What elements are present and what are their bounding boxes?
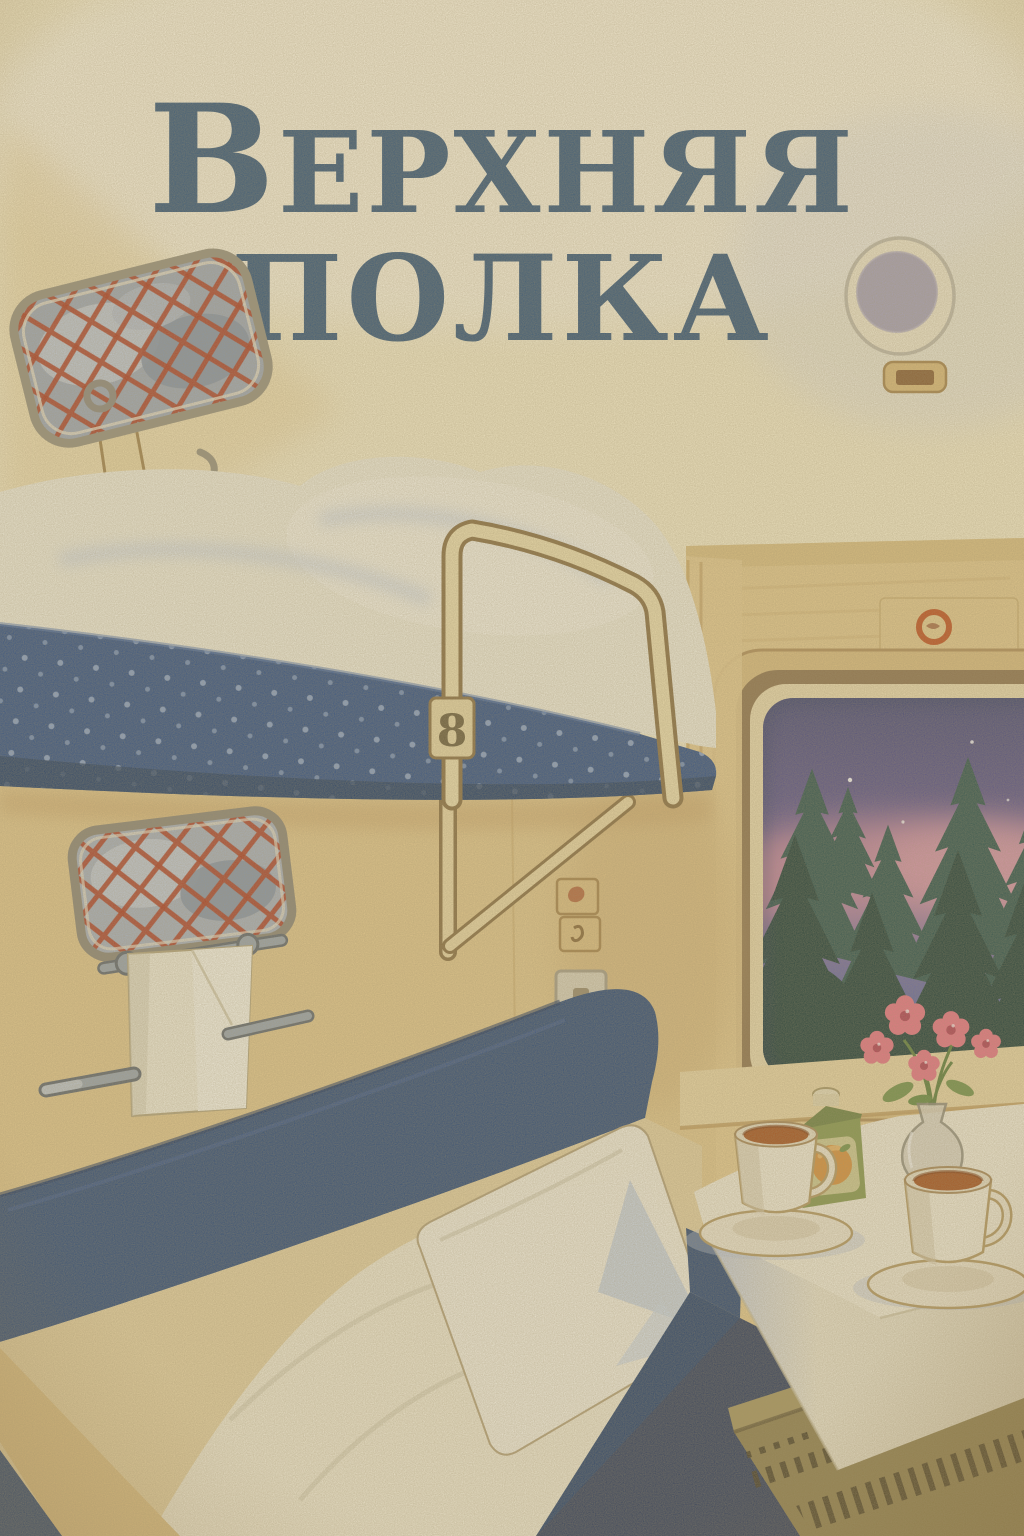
train-compartment-scene: ВЕРХНЯЯ ПОЛКА (0, 0, 1024, 1536)
poster-illustration: ВЕРХНЯЯ ПОЛКА (0, 0, 1024, 1536)
paper-grain (0, 0, 1024, 1536)
